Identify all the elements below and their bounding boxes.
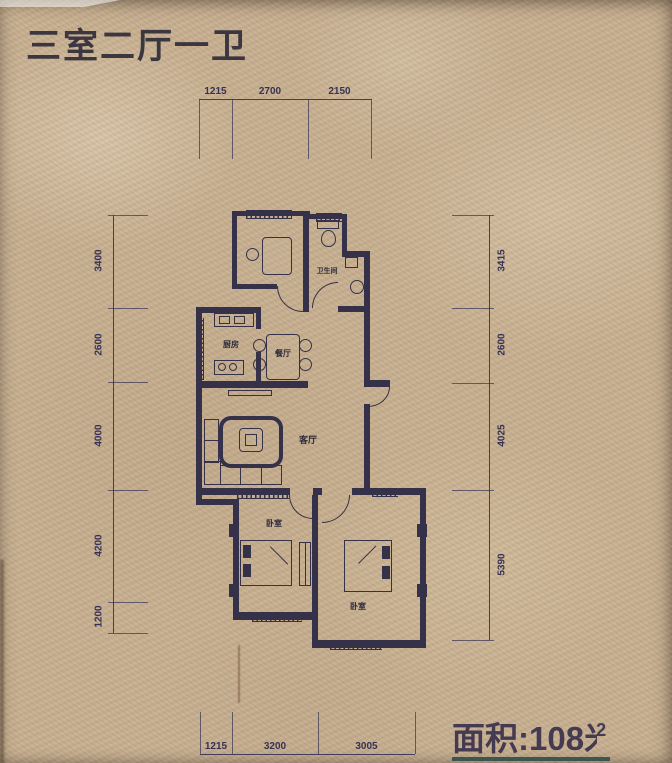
toilet-bowl bbox=[321, 230, 336, 247]
pillow bbox=[382, 546, 390, 559]
wall bbox=[364, 380, 390, 387]
wall bbox=[303, 284, 309, 312]
toilet-tank bbox=[317, 220, 339, 229]
pillow bbox=[243, 545, 251, 558]
desk bbox=[262, 237, 292, 275]
extension-line bbox=[108, 215, 148, 216]
pillow bbox=[382, 566, 390, 579]
window bbox=[252, 612, 302, 622]
extension-line bbox=[415, 712, 416, 754]
door-arc bbox=[277, 286, 303, 312]
wall bbox=[232, 211, 237, 289]
counter bbox=[228, 390, 272, 396]
room-label-dining: 餐厅 bbox=[269, 348, 297, 360]
column bbox=[229, 584, 239, 597]
dim-label: 1215 bbox=[199, 85, 232, 98]
dining-chair bbox=[253, 339, 266, 352]
dim-label: 3005 bbox=[318, 740, 415, 753]
sofa-cushion-divider bbox=[204, 440, 219, 441]
dimension-line bbox=[113, 215, 114, 633]
extension-line bbox=[108, 490, 148, 491]
sofa-cushion-divider bbox=[240, 465, 241, 485]
dim-label: 5390 bbox=[496, 544, 509, 586]
dimension-line bbox=[489, 215, 490, 640]
extension-line bbox=[108, 308, 148, 309]
burner bbox=[218, 363, 226, 371]
area-value: 面积:108 bbox=[452, 720, 584, 757]
window bbox=[330, 640, 382, 650]
extension-line bbox=[452, 215, 494, 216]
door-arc bbox=[312, 282, 338, 308]
room-label-kitchen: 厨房 bbox=[217, 339, 245, 351]
door-arc bbox=[289, 495, 313, 519]
wall bbox=[364, 404, 370, 495]
wall bbox=[256, 307, 261, 329]
window bbox=[196, 318, 204, 380]
extension-line bbox=[108, 633, 148, 634]
dim-label: 4200 bbox=[93, 525, 106, 567]
extension-line bbox=[308, 99, 309, 159]
dim-label: 2150 bbox=[308, 85, 371, 98]
window bbox=[246, 210, 292, 219]
floorplan-photo: 三室二厅一卫 bbox=[0, 0, 672, 763]
dim-label: 4025 bbox=[496, 415, 509, 457]
dining-chair bbox=[299, 358, 312, 371]
room-label-bedroom-left: 卧室 bbox=[260, 518, 288, 530]
column bbox=[417, 524, 427, 537]
dim-label: 3400 bbox=[93, 240, 106, 282]
pillow bbox=[243, 564, 251, 577]
photo-crease bbox=[238, 645, 240, 703]
sofa-corner bbox=[204, 461, 221, 485]
area-superscript: 2 bbox=[596, 720, 606, 740]
dim-label: 3415 bbox=[496, 240, 509, 282]
wall bbox=[313, 488, 322, 495]
room-label-living: 客厅 bbox=[294, 434, 322, 446]
column bbox=[229, 524, 239, 537]
sofa-cushion-divider bbox=[261, 465, 262, 485]
room-label-bedroom-right: 卧室 bbox=[344, 601, 372, 613]
extension-line bbox=[199, 99, 200, 159]
page-title: 三室二厅一卫 bbox=[26, 18, 248, 69]
dim-label: 1200 bbox=[93, 596, 106, 638]
burner bbox=[229, 363, 237, 371]
extension-line bbox=[452, 383, 494, 384]
column bbox=[417, 584, 427, 597]
dining-chair bbox=[253, 358, 266, 371]
sink bbox=[234, 316, 245, 324]
extension-line bbox=[371, 99, 372, 159]
room-label-bathroom: 卫生间 bbox=[308, 266, 346, 278]
dim-label: 4000 bbox=[93, 415, 106, 457]
door-arc bbox=[322, 495, 350, 523]
window bbox=[372, 488, 398, 497]
dim-label: 3200 bbox=[232, 740, 318, 753]
extension-line bbox=[452, 490, 494, 491]
coffee-table-inner bbox=[245, 434, 257, 446]
area-caption: 面积:108米2 bbox=[452, 712, 606, 760]
washbasin bbox=[350, 280, 364, 294]
photo-glare bbox=[0, 0, 120, 7]
extension-line bbox=[452, 640, 494, 641]
extension-line bbox=[108, 602, 148, 603]
dim-label: 2600 bbox=[93, 324, 106, 366]
dimension-line bbox=[199, 99, 372, 100]
dimension-line bbox=[200, 754, 415, 755]
wall bbox=[232, 284, 277, 289]
wall bbox=[364, 251, 370, 382]
tv-cabinet bbox=[237, 489, 289, 499]
photo-crease bbox=[0, 560, 4, 763]
accent-strip bbox=[452, 757, 610, 761]
wall bbox=[196, 499, 238, 505]
sink bbox=[219, 316, 230, 324]
dim-label: 1215 bbox=[200, 740, 232, 753]
dim-label: 2700 bbox=[232, 85, 308, 98]
sofa bbox=[220, 465, 282, 485]
extension-line bbox=[108, 382, 148, 383]
extension-line bbox=[232, 99, 233, 159]
door-arc bbox=[368, 387, 390, 407]
window bbox=[233, 540, 239, 582]
dining-chair bbox=[299, 339, 312, 352]
washing-machine bbox=[345, 257, 358, 268]
dim-label: 2600 bbox=[496, 324, 509, 366]
wall bbox=[420, 488, 426, 648]
desk-chair bbox=[246, 248, 259, 261]
wall bbox=[196, 381, 308, 388]
wardrobe-divider bbox=[305, 542, 306, 586]
extension-line bbox=[452, 308, 494, 309]
